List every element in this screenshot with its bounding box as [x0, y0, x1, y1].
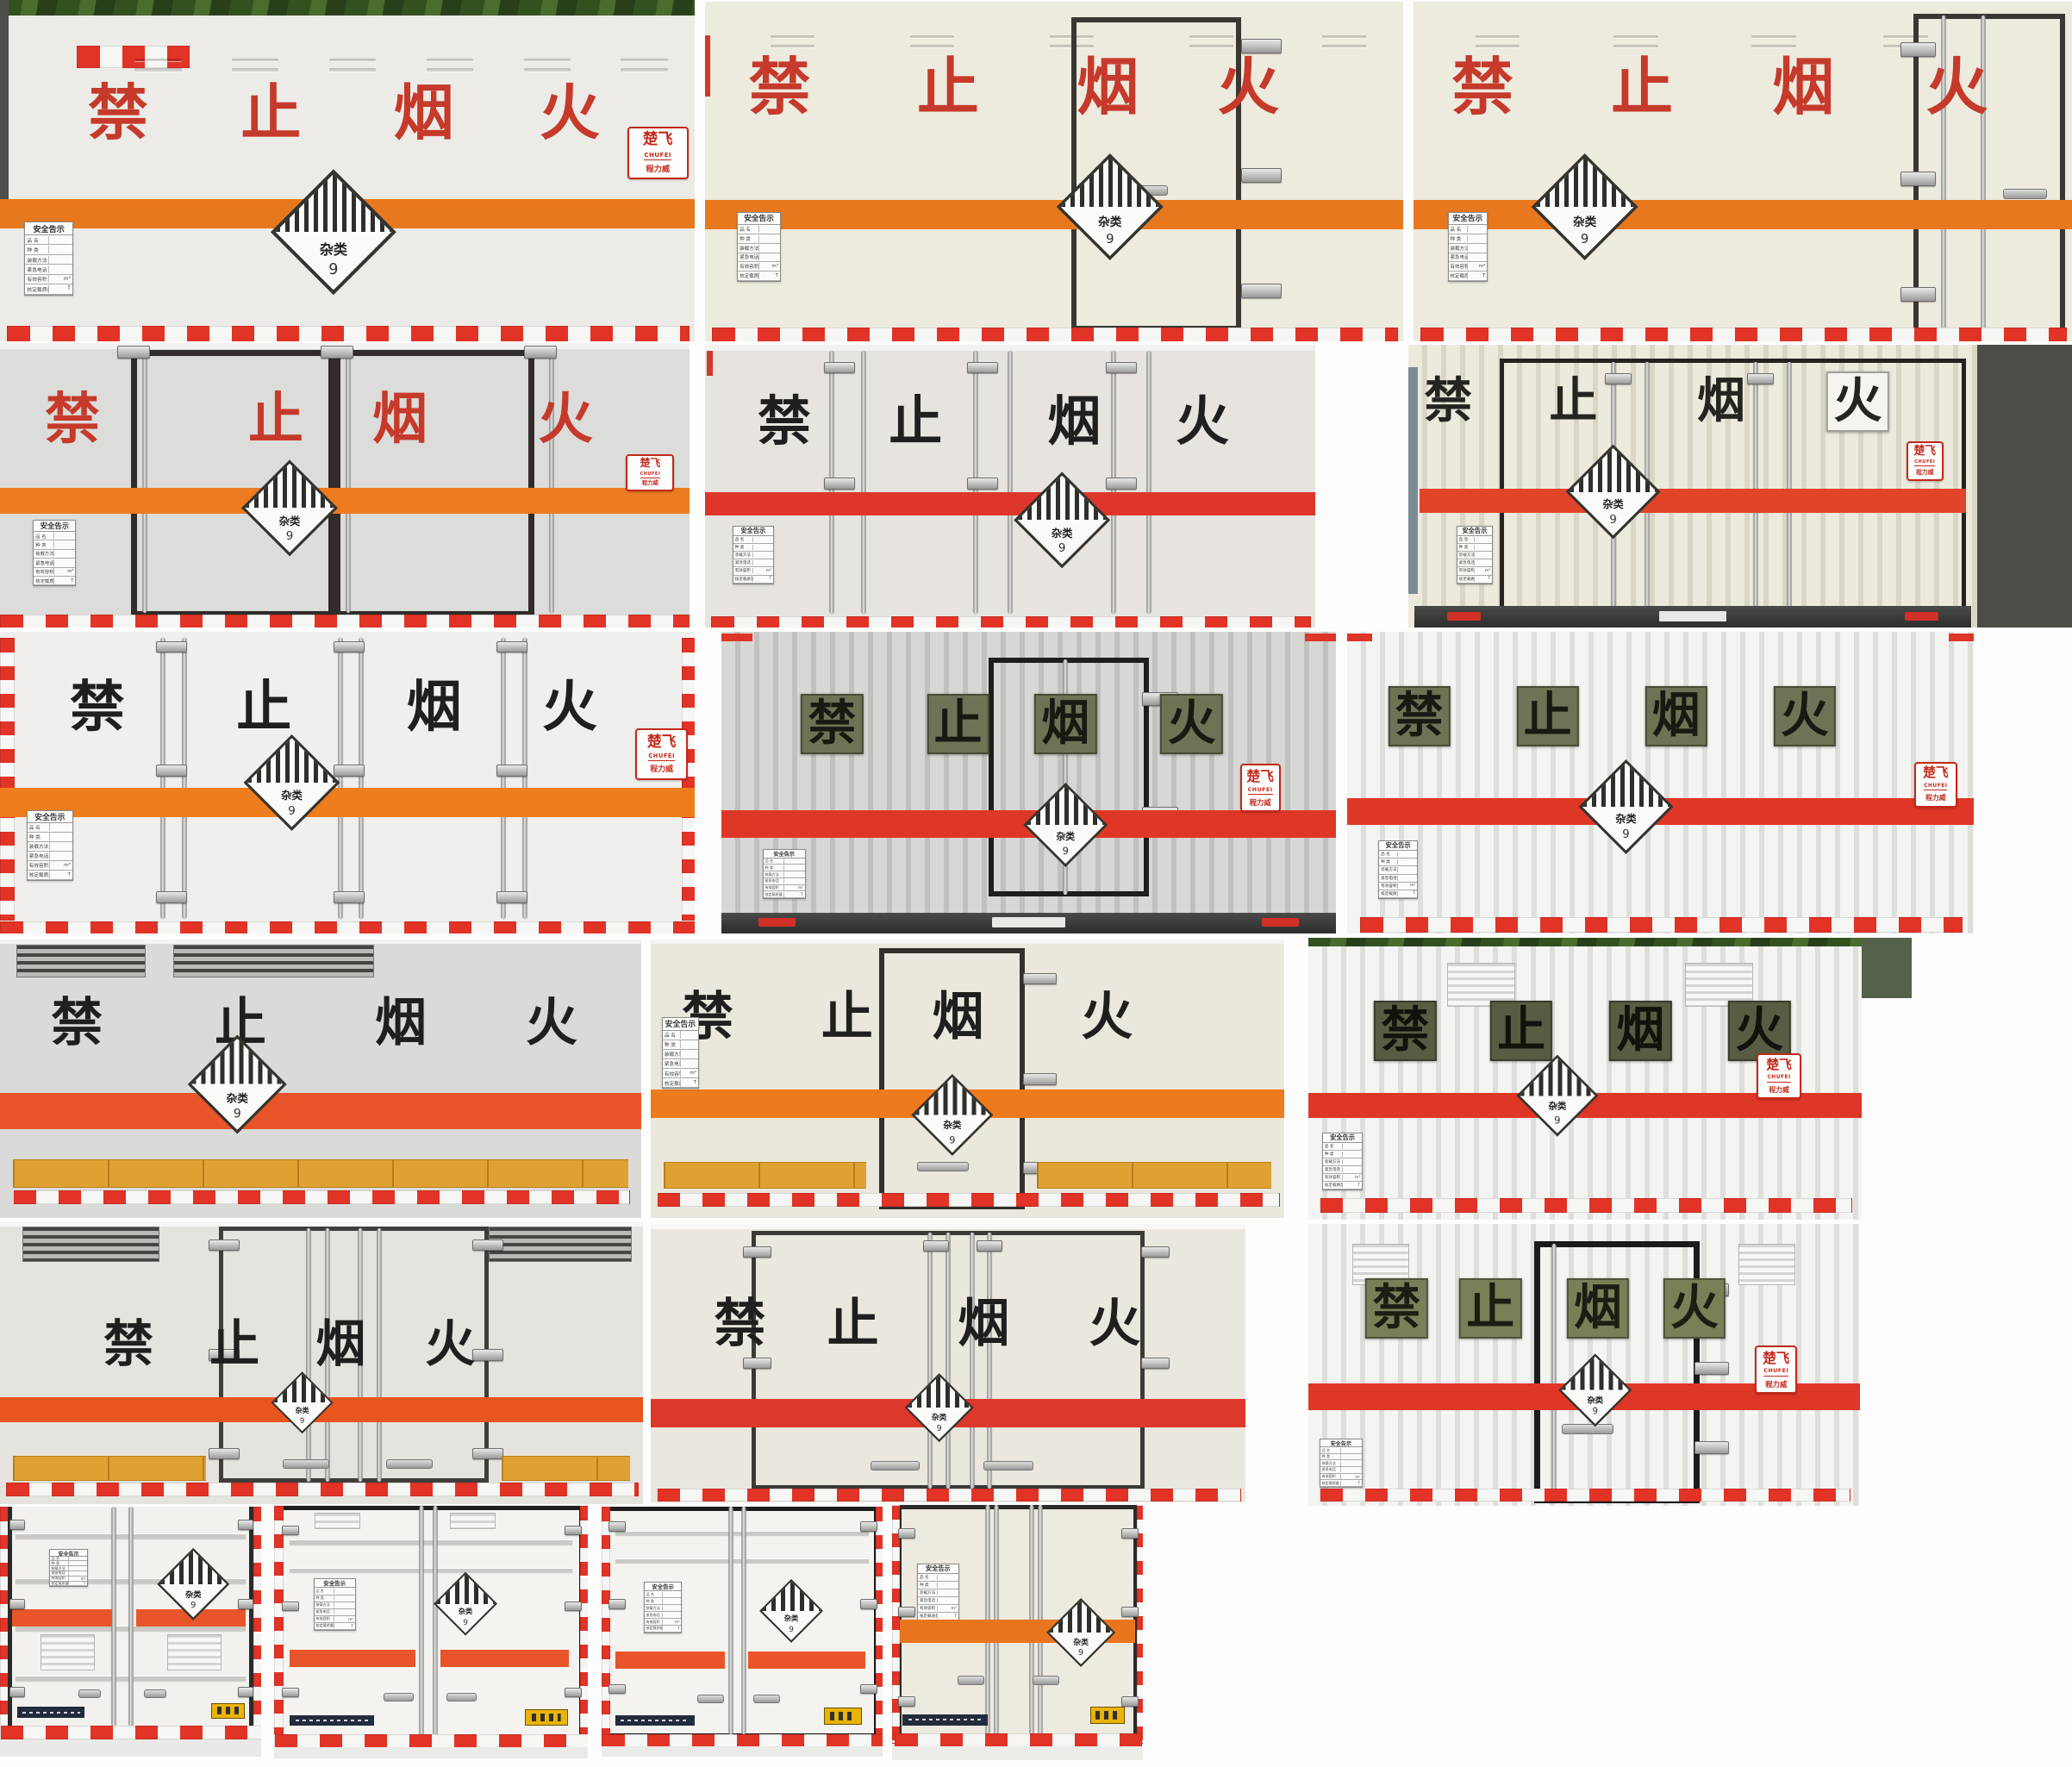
door-handle [753, 1695, 780, 1703]
safety-notice-title: 安全告示 [1379, 841, 1417, 852]
door-lock-rod [307, 1228, 311, 1482]
safety-notice-unit: T [84, 1582, 87, 1586]
safety-notice-label: 品 名 [1449, 226, 1468, 233]
safety-notice-unit: T [769, 577, 773, 581]
safety-notice-label: 紧急电话 [1449, 253, 1468, 260]
safety-notice-row: 装载方法 [738, 244, 780, 253]
safety-notice-label: 紧急电话 [663, 1059, 680, 1067]
class9-hazard-placard: 杂类9 [1023, 783, 1108, 867]
safety-notice-label: 核定载质量 [1320, 1481, 1341, 1486]
safety-notice-label: 紧急电话 [918, 1598, 938, 1603]
foliage [0, 0, 695, 16]
safety-notice-label: 品 名 [315, 1589, 335, 1594]
door-hinge [117, 346, 150, 359]
reflective-strip [13, 1190, 630, 1205]
reflective-strip [0, 921, 695, 933]
brand-sticker: 楚飞CHUFEI程力威 [1914, 762, 1957, 808]
placard-class-number: 9 [1562, 1407, 1629, 1416]
safety-notice-placard: 安全告示品 名种 类装载方法紧急电话有效容积m³核定载质量T [27, 810, 73, 882]
safety-notice-title: 安全告示 [1449, 213, 1487, 225]
safety-notice-row: 品 名 [645, 1591, 681, 1598]
hazard-stripe [440, 1650, 569, 1668]
safety-notice-label: 装载方法 [315, 1602, 335, 1608]
license-plate [1659, 611, 1726, 621]
photo-detail [249, 1507, 253, 1737]
vent-slot-bar [771, 45, 814, 47]
class9-hazard-placard: 杂类9 [905, 1373, 974, 1442]
louver-vent [16, 945, 147, 977]
safety-notice-row: 种 类 [1449, 234, 1487, 244]
reflective-strip [0, 615, 690, 628]
safety-notice-unit: m³ [1479, 264, 1487, 269]
door-lock-rod [1551, 1244, 1556, 1501]
amber-reflector [1037, 1162, 1271, 1189]
door-hinge [9, 1687, 26, 1697]
truck-photo-7: 禁止烟火杂类9安全告示品 名种 类装载方法紧急电话有效容积m³核定载质量T楚飞C… [0, 632, 695, 933]
placard-face: 杂类9 [436, 1575, 495, 1633]
door-hinge [1121, 1607, 1138, 1617]
door-hinge [472, 1349, 503, 1360]
door-handle [78, 1689, 101, 1698]
door-handle [958, 1676, 984, 1685]
safety-notice-unit: m³ [1485, 569, 1492, 573]
door-rib [290, 1540, 572, 1544]
brand-latin: CHUFEI [1767, 1076, 1790, 1083]
safety-notice-label: 核定载质量 [1457, 577, 1475, 582]
safety-notice-row: 有效容积m³ [764, 885, 805, 892]
photo-detail [0, 940, 641, 944]
brand-name: 楚飞 [647, 734, 677, 749]
placard-face: 杂类9 [908, 1376, 971, 1439]
safety-notice-label: 装载方法 [1449, 245, 1468, 252]
safety-notice-label: 种 类 [50, 1561, 69, 1565]
louver-vent [173, 945, 374, 977]
safety-notice-unit: T [694, 1080, 698, 1085]
safety-notice-row: 种 类 [1457, 544, 1492, 552]
safety-notice-row: 有效容积m³ [733, 567, 773, 575]
vent-grille [1738, 1244, 1795, 1285]
warning-char: 烟 [407, 680, 462, 735]
door-handle [386, 1459, 433, 1469]
door-hinge [496, 891, 527, 903]
vent-slot [424, 54, 476, 75]
safety-notice-label: 品 名 [1379, 852, 1398, 857]
warning-char: 止 [821, 991, 873, 1043]
brand-latin: CHUFEI [1248, 788, 1273, 795]
door-hinge [282, 1526, 299, 1535]
safety-notice-label: 核定载质量 [50, 1582, 69, 1586]
placard-stripes [1027, 786, 1104, 825]
warning-char: 烟 [1697, 378, 1745, 426]
door-lock-rod [1753, 362, 1757, 608]
vent-slot-bar [771, 35, 814, 38]
safety-notice-row: 紧急电话 [28, 852, 72, 861]
warning-char: 禁 [758, 395, 811, 448]
background-area [1862, 938, 1912, 998]
safety-notice-label: 种 类 [1457, 545, 1475, 550]
door-lock-rod [359, 638, 364, 919]
safety-notice-label: 装载方法 [645, 1606, 663, 1611]
door-handle [917, 1162, 970, 1171]
vent-slot-bar [329, 59, 376, 61]
warning-char: 止 [1490, 1001, 1552, 1061]
class9-hazard-placard: 杂类9 [1057, 153, 1164, 260]
safety-notice-label: 装载方法 [1320, 1461, 1341, 1466]
placard-face: 杂类9 [191, 1039, 283, 1130]
door-lock-rod [728, 1507, 733, 1734]
warning-char: 火 [1663, 1278, 1726, 1339]
reflective-strip [580, 1506, 588, 1740]
plate-sticker [211, 1703, 244, 1719]
safety-notice-row: 装载方法 [1323, 1158, 1362, 1166]
class9-hazard-placard: 杂类9 [1532, 153, 1638, 260]
safety-notice-unit: m³ [771, 264, 780, 269]
safety-notice-placard: 安全告示品 名种 类装载方法紧急电话有效容积m³核定载质量T [1322, 1133, 1363, 1190]
vent-slot [1320, 32, 1369, 51]
brand-name: 楚飞 [643, 133, 673, 147]
plate-sticker [525, 1709, 567, 1726]
reflective-strip [0, 1726, 261, 1740]
door-hinge [967, 362, 998, 373]
door-hinge [334, 891, 365, 903]
placard-face: 杂类9 [1562, 1357, 1629, 1424]
safety-notice-title: 安全告示 [645, 1583, 681, 1591]
placard-stripes [247, 738, 336, 783]
safety-notice-row: 有效容积m³ [1379, 883, 1417, 890]
safety-notice-unit: T [1413, 891, 1417, 896]
vent-slot-bar [232, 59, 278, 61]
placard-border: 杂类9 [1516, 1055, 1598, 1137]
door-hinge [209, 1448, 240, 1459]
warning-char: 火 [540, 83, 600, 143]
door-handle [384, 1693, 414, 1701]
placard-class-number: 9 [1027, 845, 1104, 857]
warning-char: 火 [425, 1319, 475, 1369]
tail-light [1905, 612, 1938, 621]
hazard-stripe [12, 1609, 113, 1627]
placard-border: 杂类9 [271, 169, 396, 295]
door-hinge [1241, 168, 1282, 183]
door-handle [446, 1693, 477, 1701]
door-hinge [282, 1688, 299, 1697]
safety-notice-placard: 安全告示品 名种 类装载方法紧急电话有效容积m³核定载质量T [644, 1582, 682, 1633]
safety-notice-label: 核定载质量 [1379, 891, 1398, 896]
photo-detail [0, 1739, 261, 1757]
safety-notice-row: 装载方法 [733, 552, 773, 559]
placard-class-label: 杂类 [914, 1119, 989, 1132]
brand-subname: 程力威 [642, 481, 658, 486]
placard-class-number: 9 [1049, 1648, 1113, 1658]
vent-slot-bar [1613, 45, 1658, 47]
placard-class-label: 杂类 [276, 238, 391, 259]
placard-class-label: 杂类 [1570, 496, 1657, 511]
placard-class-number: 9 [273, 1417, 330, 1426]
truck-photo-19: 安全告示品 名种 类装载方法紧急电话有效容积m³核定载质量T杂类9 [892, 1505, 1143, 1760]
door-hinge [1141, 1358, 1170, 1369]
safety-notice-title: 安全告示 [34, 521, 75, 532]
warning-char: 火 [1176, 395, 1229, 448]
safety-notice-row: 紧急电话 [1320, 1467, 1362, 1474]
door-hinge [1106, 478, 1137, 489]
brand-name: 楚飞 [1763, 1352, 1789, 1365]
safety-notice-label: 紧急电话 [28, 852, 50, 859]
safety-notice-row: 有效容积m³ [1320, 1474, 1362, 1481]
safety-notice-label: 核定载质量 [28, 871, 50, 878]
safety-notice-title: 安全告示 [1457, 527, 1492, 536]
placard-class-label: 杂类 [908, 1411, 971, 1422]
vent-grille [41, 1634, 95, 1671]
placard-stripes [1061, 158, 1159, 207]
class9-hazard-placard: 杂类9 [157, 1548, 229, 1620]
class9-hazard-placard: 杂类9 [241, 459, 338, 556]
placard-stripes [1018, 476, 1107, 521]
safety-notice-label: 核定载质量 [645, 1626, 663, 1631]
safety-notice-label: 品 名 [1323, 1144, 1343, 1149]
safety-notice-label: 核定载质量 [315, 1623, 335, 1628]
warning-char: 火 [542, 680, 597, 735]
safety-notice-row: 种 类 [28, 833, 72, 842]
vent-slot-bar [1476, 35, 1520, 38]
truck-photo-collage: 禁止烟火杂类9安全告示品 名种 类装载方法紧急电话有效容积m³核定载质量T楚飞C… [0, 0, 2072, 1767]
warning-char: 火 [526, 997, 577, 1049]
truck-photo-5: 禁止烟火杂类9安全告示品 名种 类装载方法紧急电话有效容积m³核定载质量T [705, 345, 1315, 628]
safety-notice-placard: 安全告示品 名种 类装载方法紧急电话有效容积m³核定载质量T [917, 1564, 959, 1621]
safety-notice-row: 装载方法 [25, 255, 72, 265]
placard-face: 杂类9 [1049, 1601, 1113, 1664]
vent-slot-bar [1322, 45, 1366, 47]
plate-sticker [1090, 1707, 1125, 1724]
door-hinge [898, 1528, 914, 1539]
safety-notice-label: 有效容积 [645, 1620, 663, 1625]
safety-notice-row: 紧急电话 [663, 1059, 697, 1069]
placard-border: 杂类9 [1014, 471, 1110, 568]
safety-notice-row: 品 名 [733, 536, 773, 544]
safety-notice-label: 种 类 [1379, 859, 1398, 865]
warning-char: 止 [1459, 1278, 1521, 1339]
door-lock-rod [128, 1507, 133, 1726]
placard-class-number: 9 [276, 261, 391, 278]
brand-name: 楚飞 [1923, 767, 1948, 780]
hazard-stripe [705, 200, 1403, 229]
safety-notice-title: 安全告示 [738, 213, 780, 225]
safety-notice-title: 安全告示 [315, 1579, 355, 1588]
safety-notice-placard: 安全告示品 名种 类装载方法紧急电话有效容积m³核定载质量T [24, 222, 73, 295]
door-hinge [524, 346, 557, 359]
class9-hazard-placard: 杂类9 [434, 1572, 497, 1636]
warning-char: 烟 [372, 392, 428, 447]
reflective-strip [711, 616, 1311, 628]
safety-notice-label: 有效容积 [28, 861, 50, 869]
safety-notice-row: 装载方法 [34, 550, 75, 559]
warning-char: 烟 [1772, 56, 1834, 118]
vent-slot-bar [1751, 35, 1796, 38]
door-lock-rod [502, 638, 506, 919]
safety-notice-unit: T [801, 892, 804, 896]
safety-notice-label: 装载方法 [733, 553, 753, 558]
safety-notice-label: 有效容积 [1457, 568, 1475, 573]
truck-photo-16: 杂类9安全告示品 名种 类装载方法紧急电话有效容积m³核定载质量T [0, 1507, 261, 1757]
safety-notice-label: 装载方法 [663, 1050, 680, 1058]
hazard-stripe [1420, 489, 1966, 513]
vent-grille [450, 1513, 496, 1530]
door-hinge [496, 765, 527, 777]
warning-char: 烟 [315, 1319, 365, 1369]
warning-char: 火 [1081, 991, 1133, 1043]
placard-stripes [273, 1374, 330, 1402]
safety-notice-row: 种 类 [918, 1582, 958, 1589]
safety-notice-label: 装载方法 [738, 245, 758, 252]
safety-notice-unit: m³ [67, 569, 75, 574]
class9-hazard-placard: 杂类9 [1516, 1055, 1598, 1137]
warning-char: 禁 [51, 997, 103, 1049]
safety-notice-label: 种 类 [918, 1583, 938, 1588]
safety-notice-label: 装载方法 [50, 1566, 69, 1570]
safety-notice-row: 紧急电话 [918, 1597, 958, 1605]
safety-notice-label: 装载方法 [28, 842, 50, 850]
safety-notice-row: 种 类 [315, 1595, 355, 1602]
reflective-strip [274, 1506, 284, 1740]
safety-notice-placard: 安全告示品 名种 类装载方法紧急电话有效容积m³核定载质量T [1457, 526, 1493, 584]
class9-hazard-placard: 杂类9 [244, 734, 340, 831]
warning-char: 禁 [801, 694, 863, 754]
safety-notice-label: 紧急电话 [315, 1609, 335, 1614]
door-hinge [238, 1687, 254, 1697]
safety-notice-row: 有效容积m³ [315, 1616, 355, 1623]
safety-notice-unit: m³ [1355, 1475, 1361, 1479]
door-hinge [496, 641, 527, 653]
vent-slot [1750, 32, 1799, 51]
safety-notice-unit: m³ [64, 277, 72, 282]
door-hinge [1605, 373, 1632, 384]
safety-notice-label: 紧急电话 [1379, 876, 1398, 881]
safety-notice-row: 品 名 [1457, 536, 1492, 544]
warning-char: 止 [1516, 686, 1578, 746]
placard-class-number: 9 [1536, 231, 1634, 247]
brand-subname: 程力威 [1769, 1087, 1789, 1094]
warning-char: 止 [236, 680, 291, 735]
safety-notice-label: 核定载质量 [1449, 272, 1468, 279]
safety-notice-unit: T [67, 286, 72, 291]
safety-notice-unit: m³ [81, 1577, 87, 1581]
safety-notice-row: 种 类 [733, 544, 773, 552]
placard-stripes [908, 1376, 971, 1408]
safety-notice-row: 种 类 [1323, 1151, 1362, 1158]
placard-border: 杂类9 [1566, 445, 1661, 540]
brand-subname: 程力威 [1250, 799, 1271, 806]
door-hinge [860, 1684, 877, 1694]
door-hinge [743, 1246, 771, 1258]
placard-class-label: 杂类 [1061, 212, 1159, 229]
safety-notice-row: 核定载质量T [25, 284, 72, 294]
door-hinge [1900, 172, 1935, 186]
truck-photo-9: 禁止烟火杂类9安全告示品 名种 类装载方法紧急电话有效容积m³核定载质量T楚飞C… [1347, 632, 1974, 933]
placard-class-number: 9 [436, 1619, 495, 1627]
door-hinge [472, 1448, 503, 1459]
safety-notice-row: 紧急电话 [1323, 1166, 1362, 1174]
safety-notice-title: 安全告示 [28, 811, 72, 823]
placard-face: 杂类9 [1061, 158, 1159, 256]
safety-notice-label: 品 名 [1457, 537, 1475, 542]
warning-char: 火 [1217, 56, 1279, 118]
safety-notice-label: 紧急电话 [764, 878, 784, 883]
truck-photo-13: 禁止烟火杂类9 [0, 1222, 643, 1504]
safety-notice-title: 安全告示 [50, 1550, 87, 1556]
hazard-stripe [615, 1651, 725, 1669]
placard-face: 杂类9 [247, 738, 336, 827]
safety-notice-label: 种 类 [1320, 1454, 1341, 1459]
tail-light [1447, 612, 1481, 621]
safety-notice-row: 核定载质量T [1323, 1182, 1362, 1189]
vent-slot [132, 54, 184, 75]
door-handle [983, 1461, 1033, 1470]
door-hinge [977, 1240, 1002, 1251]
door-handle [2003, 189, 2048, 199]
safety-notice-label: 有效容积 [733, 568, 753, 573]
placard-stripes [1562, 1357, 1629, 1390]
safety-notice-row: 核定载质量T [1320, 1480, 1362, 1487]
safety-notice-row: 品 名 [738, 225, 780, 234]
safety-notice-unit: m³ [1355, 1176, 1362, 1180]
placard-border: 杂类9 [905, 1373, 974, 1442]
safety-notice-label: 有效容积 [663, 1070, 680, 1077]
safety-notice-row: 有效容积m³ [34, 568, 75, 577]
reflective-strip [0, 638, 15, 921]
placard-stripes [1570, 448, 1657, 492]
placard-border: 杂类9 [241, 459, 338, 556]
safety-notice-label: 品 名 [1320, 1448, 1341, 1453]
reflective-strip [876, 1507, 883, 1739]
safety-notice-label: 核定载质量 [733, 577, 753, 582]
brand-sticker: 楚飞CHUFEI程力威 [1757, 1053, 1801, 1099]
door-hinge [565, 1526, 582, 1535]
reflective-strip [1320, 1489, 1850, 1502]
safety-notice-label: 品 名 [663, 1031, 680, 1039]
cargo-door [334, 350, 534, 617]
placard-class-label: 杂类 [245, 513, 334, 528]
placard-border: 杂类9 [188, 1034, 287, 1133]
vent-slot-bar [621, 68, 667, 71]
class9-hazard-placard: 杂类9 [1014, 471, 1110, 568]
safety-notice-title: 安全告示 [918, 1564, 958, 1574]
warning-char: 火 [1160, 694, 1222, 754]
safety-notice-row: 核定载质量T [645, 1626, 681, 1633]
warning-char: 禁 [1424, 378, 1472, 426]
placard-class-label: 杂类 [1562, 1394, 1629, 1406]
placard-stripes [245, 464, 334, 509]
door-handle [144, 1689, 166, 1698]
safety-notice-label: 种 类 [663, 1040, 680, 1048]
safety-notice-row: 有效容积m³ [1449, 262, 1487, 272]
brand-sticker: 楚飞CHUFEI程力威 [635, 728, 687, 780]
safety-notice-label: 紧急电话 [738, 253, 758, 260]
safety-notice-row: 核定载质量T [50, 1582, 87, 1587]
safety-notice-row: 有效容积m³ [28, 861, 72, 871]
vent-slot-bar [1322, 35, 1366, 38]
placard-stripes [1582, 763, 1669, 807]
placard-class-number: 9 [1520, 1115, 1595, 1127]
door-hinge [898, 1607, 914, 1617]
safety-notice-label: 种 类 [738, 235, 758, 242]
brand-name: 楚飞 [1766, 1059, 1791, 1072]
warning-char: 烟 [1609, 1001, 1671, 1061]
safety-notice-row: 品 名 [764, 859, 805, 865]
placard-border: 杂类9 [1558, 1353, 1632, 1427]
safety-notice-label: 紧急电话 [1323, 1167, 1343, 1172]
safety-notice-row: 紧急电话 [25, 265, 72, 274]
vent-slot-bar [427, 59, 473, 61]
safety-notice-row: 种 类 [738, 234, 780, 244]
photo-detail [721, 634, 752, 641]
